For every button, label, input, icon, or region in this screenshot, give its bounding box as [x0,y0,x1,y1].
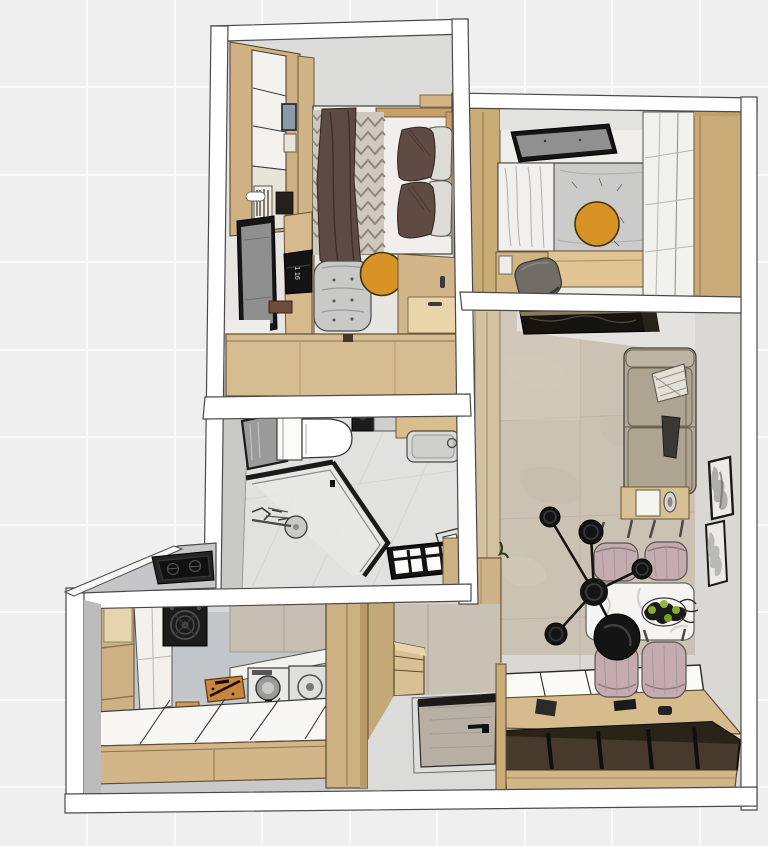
svg-text:1 16: 1 16 [293,266,300,280]
